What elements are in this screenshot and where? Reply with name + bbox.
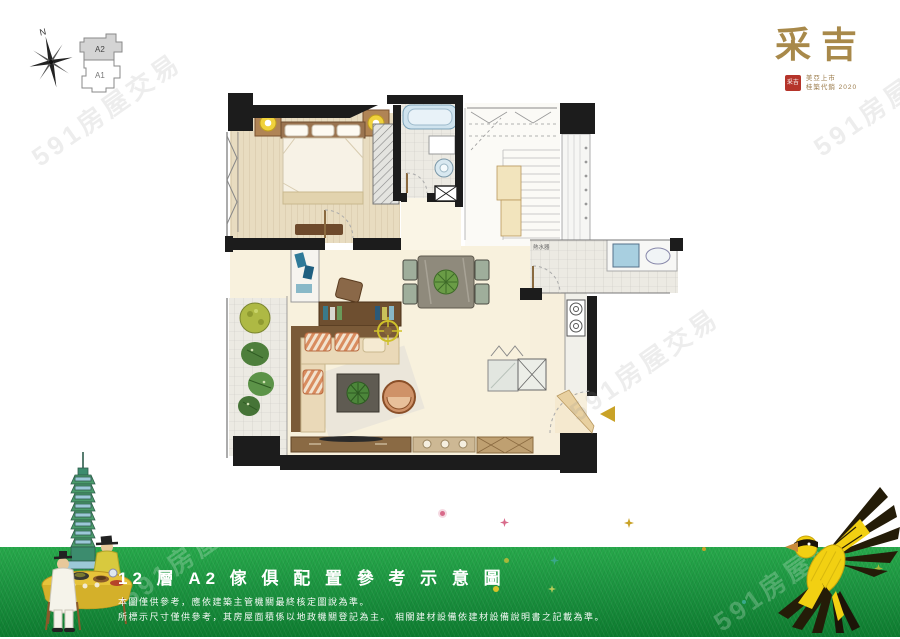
keyplan: A2 A1 [70, 30, 130, 100]
figure-robe-white [49, 568, 77, 613]
hallway-floor [401, 198, 461, 250]
sink-drain [440, 164, 448, 172]
floorplan-title: 12 層 A2 傢 俱 配 置 參 考 示 意 圖 [118, 564, 605, 589]
ball-tree [240, 303, 270, 333]
brand-tagline-2: 桂築代銷 2020 [806, 83, 857, 92]
pipe-shaft [562, 134, 590, 240]
compass-north-label: N [39, 26, 47, 37]
dining-chair [475, 284, 489, 304]
dining-chair [475, 260, 489, 280]
brand-logo: 采吉 采吉 美亞上市 桂築代銷 2020 [756, 24, 886, 92]
bathtub-inner [408, 109, 452, 125]
water-heater-label: 熱水器 [533, 243, 550, 251]
decor-item [296, 284, 312, 293]
cushion [363, 338, 385, 352]
pillow [312, 125, 334, 136]
sparkle-dot [440, 511, 445, 516]
entry-arrow-icon [600, 406, 615, 422]
cushion [335, 333, 359, 351]
pillow [337, 125, 360, 136]
dining-chair [403, 284, 417, 304]
bed-throw [283, 192, 363, 204]
floor-plan: 熱水器 [225, 88, 685, 478]
cushion [305, 333, 331, 351]
sparkle-icon [624, 518, 634, 528]
keyplan-a2-label: A2 [95, 45, 105, 54]
duct-box [435, 186, 457, 201]
disclaimer-line-2: 所標示尺寸僅供參考，其房屋面積係以地政機關登記為主。 相關建材設備依建材設備說明… [118, 610, 605, 625]
storage-cabinet [477, 437, 533, 453]
sparkle-dot [742, 600, 746, 604]
bed-bench [295, 224, 343, 235]
kitchen-sink [646, 248, 670, 264]
keyplan-a1-label: A1 [95, 71, 105, 80]
pillow [285, 125, 308, 136]
caption-block: 12 層 A2 傢 俱 配 置 參 考 示 意 圖 本圖僅供參考，應依建築主管機… [118, 564, 605, 625]
bird-head [785, 536, 818, 558]
tv-icon [319, 436, 383, 442]
stair-landing [497, 166, 521, 200]
taipei-101-tower [67, 452, 99, 569]
brand-seal-icon: 采吉 [785, 75, 801, 91]
toilet [429, 136, 455, 154]
brand-tagline-1: 美亞上市 [806, 74, 857, 83]
dining-chair [403, 260, 417, 280]
sparkle-icon [500, 518, 509, 527]
stair-landing [501, 200, 521, 236]
brand-name: 采吉 [756, 24, 886, 66]
sofa-arm [291, 338, 301, 432]
beak [785, 542, 798, 552]
sparkle-dot [702, 547, 706, 551]
sparkle-dot [504, 558, 509, 563]
cooktop [613, 244, 639, 267]
oriole-bird-illustration [768, 475, 900, 637]
disclaimer-line-1: 本圖僅供參考，應依建築主管機關最終核定圖說為準。 [118, 595, 605, 610]
cushion [303, 370, 323, 394]
